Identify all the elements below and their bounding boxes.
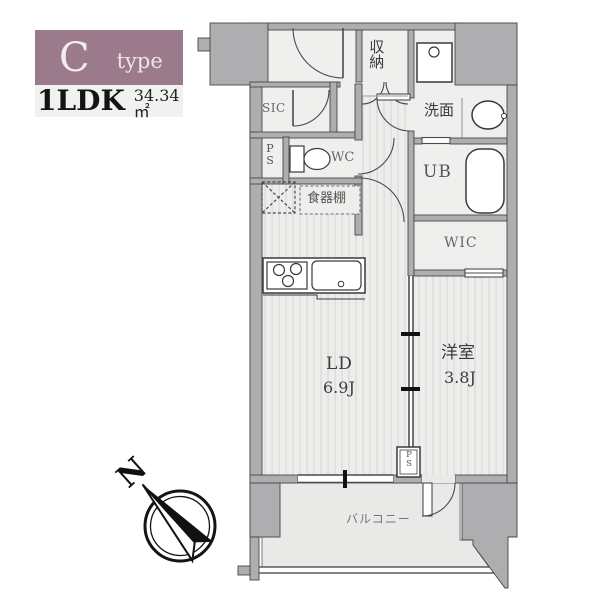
wall-sic-wc-divider [250, 132, 362, 138]
ld-kitchen-floor [262, 184, 362, 475]
wall-left [250, 85, 262, 537]
wall-below-wc [250, 178, 362, 184]
bathtub-icon [466, 149, 504, 213]
label-living-dining-size: 6.9J [323, 379, 355, 397]
lavatory-faucet-icon [502, 114, 507, 119]
type-word: type [117, 43, 163, 72]
lavatory-sink-icon [472, 101, 504, 129]
burner-icon-2 [291, 264, 302, 275]
label-storage: 収納 [367, 39, 384, 69]
burner-icon-1 [274, 265, 285, 276]
corridor-floor [362, 96, 408, 475]
wall-wic-bottom-2 [503, 270, 507, 276]
label-living-dining: LD [326, 355, 353, 375]
balcony-door-opening [422, 475, 455, 483]
wall-left-foot [238, 566, 250, 575]
compass: N [94, 436, 229, 575]
layout-text: 1LDK [37, 87, 125, 115]
wall-sic-top [250, 82, 340, 87]
label-ps-lower: PS [404, 451, 414, 469]
kitchen-sink-icon [312, 261, 361, 290]
type-badge: C type [35, 30, 183, 85]
balcony-railing [256, 567, 502, 573]
wall-ps-right [283, 137, 289, 184]
ub-door [422, 138, 450, 144]
washroom-door-leaf [377, 94, 410, 100]
wall-ub-wic [414, 215, 507, 221]
wall-right-column-lower [408, 131, 414, 276]
label-wc: WC [331, 151, 354, 166]
wall-bottom-3 [455, 475, 507, 483]
layout-info: 1LDK 34.34㎡ [35, 85, 183, 117]
burner-icon-3 [283, 276, 294, 287]
wall-left-protrusion [198, 38, 210, 51]
label-unit-bath: UB [423, 163, 452, 183]
label-western-room: 洋室 [441, 344, 475, 364]
wall-sic-right [330, 82, 337, 135]
wall-left-lower [250, 537, 259, 580]
wall-top-right-block [455, 23, 517, 85]
toilet-bowl-icon [304, 149, 330, 170]
balcony-door-leaf [423, 483, 432, 516]
area-text: 34.34㎡ [134, 82, 183, 120]
label-ps-upper: PS [264, 143, 276, 166]
wall-wic-bottom-1 [414, 270, 465, 276]
type-letter: C [59, 38, 90, 78]
wall-right [507, 85, 517, 483]
wall-top-left-block [210, 23, 268, 85]
floorplan-page: N C type 1LDK 34.34㎡ 収納 SIC PS WC 食器棚 洗面… [0, 0, 604, 611]
wall-washroom-ub-1 [414, 138, 422, 144]
compass-needle-light [132, 484, 203, 560]
label-cupboard: 食器棚 [307, 192, 346, 207]
label-wic: WIC [444, 235, 478, 251]
washing-machine-faucet-icon [429, 47, 439, 57]
wall-storage-left [356, 30, 362, 82]
wall-balcony-left-wing [250, 483, 280, 537]
kitchen-drain-icon [338, 281, 344, 287]
toilet-tank-icon [290, 146, 304, 172]
partition-tick-1 [401, 332, 420, 336]
ld-window-tick [343, 470, 347, 488]
label-washroom: 洗面 [424, 102, 454, 119]
label-western-room-size: 3.8J [444, 369, 476, 387]
wall-washroom-ub-2 [450, 138, 507, 144]
wall-corridor-left-upper [355, 84, 362, 140]
compass-north-label: N [110, 451, 154, 495]
wall-right-column-upper [408, 30, 414, 98]
wall-top [268, 23, 460, 30]
label-balcony: バルコニー [346, 513, 411, 527]
label-sic: SIC [262, 102, 286, 116]
partition-tick-2 [401, 387, 420, 391]
wall-bottom-1 [250, 475, 298, 483]
